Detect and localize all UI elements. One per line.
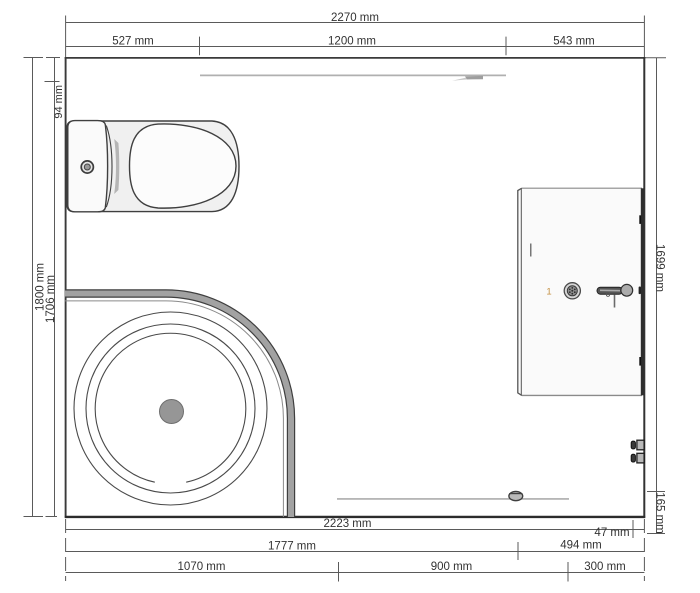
- svg-text:543 mm: 543 mm: [553, 35, 595, 47]
- svg-text:1: 1: [546, 287, 551, 298]
- svg-text:94 mm: 94 mm: [53, 85, 65, 119]
- svg-text:494 mm: 494 mm: [560, 540, 602, 552]
- svg-text:300 mm: 300 mm: [584, 561, 626, 573]
- svg-text:1777 mm: 1777 mm: [268, 540, 316, 552]
- svg-text:1070 mm: 1070 mm: [178, 561, 226, 573]
- svg-text:47 mm: 47 mm: [594, 527, 629, 539]
- svg-text:900 mm: 900 mm: [431, 561, 473, 573]
- svg-text:2270 mm: 2270 mm: [331, 12, 379, 24]
- svg-text:1699 mm: 1699 mm: [653, 244, 665, 292]
- svg-text:165 mm: 165 mm: [653, 492, 665, 534]
- svg-text:527 mm: 527 mm: [112, 35, 154, 47]
- svg-text:2223 mm: 2223 mm: [324, 518, 372, 530]
- svg-text:1706 mm: 1706 mm: [45, 275, 57, 323]
- svg-text:1200 mm: 1200 mm: [328, 35, 376, 47]
